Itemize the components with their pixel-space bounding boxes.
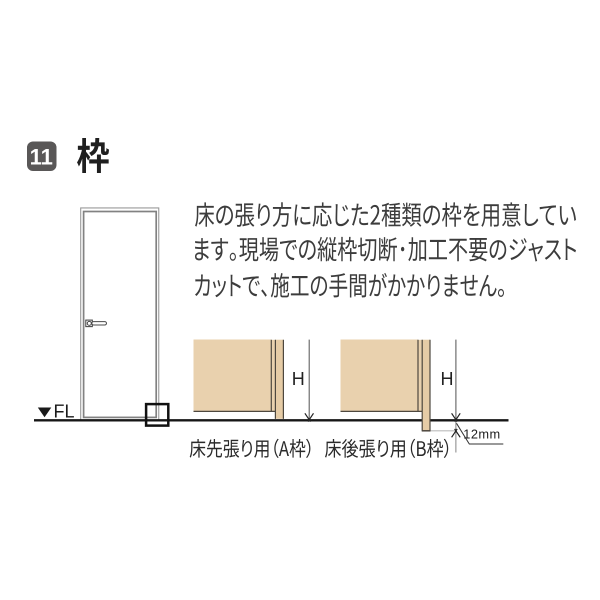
svg-text:H: H (292, 369, 305, 389)
svg-text:11: 11 (30, 144, 53, 169)
svg-text:FL: FL (54, 402, 75, 422)
svg-text:H: H (441, 369, 454, 389)
svg-text:12mm: 12mm (463, 427, 500, 442)
